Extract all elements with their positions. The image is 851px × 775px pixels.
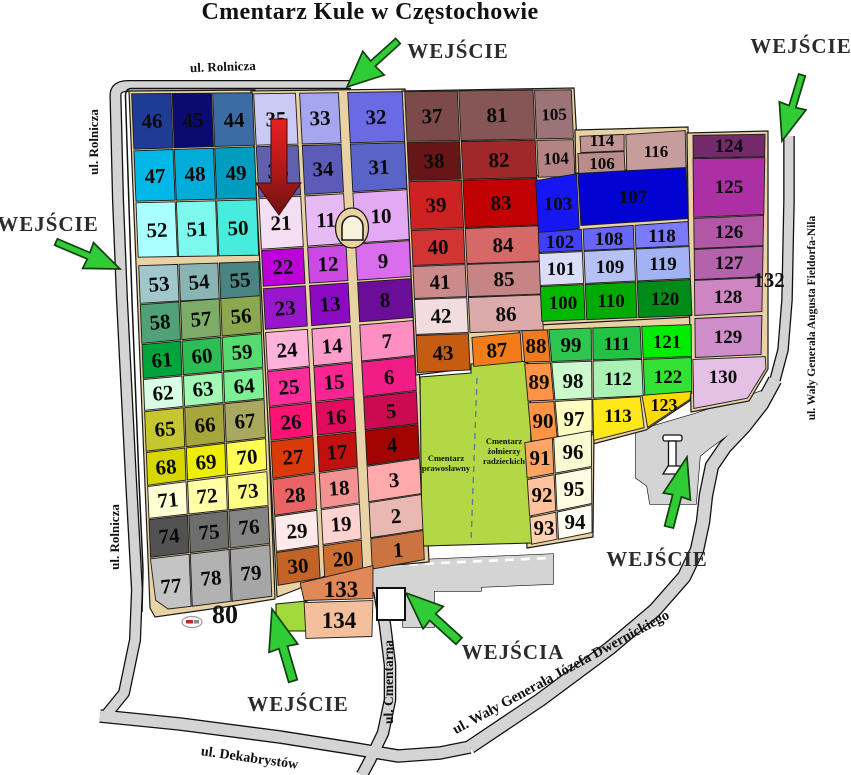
svg-text:40: 40 bbox=[427, 235, 449, 260]
svg-text:86: 86 bbox=[495, 302, 517, 327]
svg-text:WEJŚCIA: WEJŚCIA bbox=[462, 640, 565, 664]
svg-text:56: 56 bbox=[229, 303, 252, 329]
svg-text:94: 94 bbox=[565, 510, 587, 534]
svg-text:31: 31 bbox=[368, 155, 390, 180]
svg-text:64: 64 bbox=[233, 373, 257, 399]
svg-text:19: 19 bbox=[330, 511, 353, 536]
svg-text:108: 108 bbox=[595, 229, 624, 250]
svg-text:126: 126 bbox=[715, 222, 744, 243]
svg-text:1: 1 bbox=[392, 538, 404, 563]
svg-text:ul. Rolnicza: ul. Rolnicza bbox=[86, 109, 101, 175]
svg-text:78: 78 bbox=[199, 565, 222, 591]
svg-text:26: 26 bbox=[280, 409, 303, 434]
svg-text:129: 129 bbox=[714, 327, 743, 348]
svg-text:84: 84 bbox=[492, 233, 514, 258]
svg-text:ul. Rolnicza: ul. Rolnicza bbox=[107, 504, 122, 570]
svg-text:37: 37 bbox=[421, 104, 443, 129]
svg-text:89: 89 bbox=[529, 370, 550, 394]
svg-text:7: 7 bbox=[381, 329, 393, 354]
svg-text:14: 14 bbox=[321, 333, 344, 358]
svg-text:120: 120 bbox=[651, 289, 680, 310]
svg-text:55: 55 bbox=[228, 267, 251, 293]
svg-text:124: 124 bbox=[715, 136, 744, 157]
svg-text:ul. Cmentarna: ul. Cmentarna bbox=[381, 640, 396, 724]
svg-text:20: 20 bbox=[332, 546, 355, 571]
svg-text:116: 116 bbox=[644, 142, 669, 161]
svg-text:21: 21 bbox=[270, 211, 292, 236]
svg-text:29: 29 bbox=[286, 518, 309, 543]
svg-text:76: 76 bbox=[237, 514, 260, 540]
svg-text:9: 9 bbox=[377, 249, 388, 273]
svg-text:125: 125 bbox=[715, 177, 744, 198]
svg-text:69: 69 bbox=[194, 449, 217, 475]
svg-text:85: 85 bbox=[493, 267, 515, 292]
svg-text:44: 44 bbox=[223, 108, 245, 133]
svg-text:ul. Wały Generała Augusta Fiel: ul. Wały Generała Augusta Fieldorfa-Nila bbox=[806, 215, 818, 420]
svg-text:5: 5 bbox=[385, 399, 397, 424]
svg-text:118: 118 bbox=[648, 226, 675, 247]
svg-text:WEJŚCIE: WEJŚCIE bbox=[247, 692, 349, 716]
svg-text:51: 51 bbox=[186, 217, 208, 242]
svg-text:82: 82 bbox=[488, 148, 510, 173]
svg-text:65: 65 bbox=[153, 416, 176, 442]
svg-text:73: 73 bbox=[236, 478, 259, 504]
svg-text:113: 113 bbox=[604, 406, 631, 427]
svg-text:ul. Rolnicza: ul. Rolnicza bbox=[190, 58, 257, 75]
svg-text:119: 119 bbox=[649, 254, 676, 275]
svg-text:97: 97 bbox=[564, 407, 585, 431]
svg-text:111: 111 bbox=[604, 334, 630, 355]
svg-text:79: 79 bbox=[239, 560, 262, 586]
svg-text:62: 62 bbox=[151, 380, 174, 406]
svg-text:58: 58 bbox=[148, 309, 171, 335]
svg-text:130: 130 bbox=[709, 367, 738, 388]
svg-text:75: 75 bbox=[197, 519, 220, 545]
svg-text:71: 71 bbox=[156, 487, 179, 513]
svg-text:132: 132 bbox=[753, 268, 785, 292]
svg-text:12: 12 bbox=[317, 252, 339, 277]
svg-text:28: 28 bbox=[284, 482, 307, 507]
svg-text:42: 42 bbox=[430, 304, 452, 329]
svg-text:74: 74 bbox=[157, 523, 181, 549]
svg-text:11: 11 bbox=[316, 208, 337, 233]
svg-text:Cmentarz: Cmentarz bbox=[428, 453, 465, 463]
svg-text:24: 24 bbox=[276, 337, 299, 362]
svg-text:102: 102 bbox=[546, 232, 575, 253]
svg-text:121: 121 bbox=[653, 332, 682, 353]
svg-text:żołnierzy: żołnierzy bbox=[487, 446, 521, 456]
svg-text:91: 91 bbox=[530, 446, 551, 470]
svg-text:2: 2 bbox=[390, 504, 402, 529]
svg-text:15: 15 bbox=[323, 369, 346, 394]
svg-text:60: 60 bbox=[190, 343, 213, 369]
svg-text:53: 53 bbox=[147, 271, 170, 297]
svg-text:WEJŚCIE: WEJŚCIE bbox=[606, 547, 708, 571]
svg-text:59: 59 bbox=[230, 339, 253, 365]
svg-text:63: 63 bbox=[191, 376, 214, 402]
svg-text:83: 83 bbox=[490, 191, 512, 216]
svg-text:92: 92 bbox=[532, 483, 553, 507]
svg-text:WEJŚCIE: WEJŚCIE bbox=[750, 34, 851, 58]
svg-text:prawosławny: prawosławny bbox=[422, 463, 471, 473]
svg-text:134: 134 bbox=[322, 608, 357, 633]
svg-text:6: 6 bbox=[383, 365, 395, 390]
svg-text:43: 43 bbox=[432, 341, 454, 366]
svg-text:34: 34 bbox=[312, 157, 334, 182]
svg-text:27: 27 bbox=[282, 444, 305, 469]
svg-text:72: 72 bbox=[195, 483, 218, 509]
svg-text:61: 61 bbox=[150, 347, 173, 373]
svg-text:99: 99 bbox=[561, 333, 582, 357]
svg-text:109: 109 bbox=[596, 257, 625, 278]
svg-text:3: 3 bbox=[388, 468, 400, 493]
svg-text:WEJŚCIE: WEJŚCIE bbox=[0, 212, 99, 236]
svg-text:70: 70 bbox=[235, 444, 258, 470]
svg-text:105: 105 bbox=[541, 105, 567, 125]
svg-text:107: 107 bbox=[619, 187, 648, 208]
svg-text:25: 25 bbox=[278, 374, 301, 399]
svg-text:57: 57 bbox=[189, 306, 212, 332]
svg-text:67: 67 bbox=[233, 408, 256, 434]
svg-text:90: 90 bbox=[533, 409, 554, 433]
svg-text:48: 48 bbox=[184, 162, 206, 187]
svg-text:127: 127 bbox=[715, 253, 744, 274]
svg-text:Cmentarz: Cmentarz bbox=[486, 436, 523, 446]
svg-text:49: 49 bbox=[225, 161, 247, 186]
svg-text:104: 104 bbox=[543, 149, 570, 169]
svg-text:114: 114 bbox=[590, 131, 615, 150]
svg-text:47: 47 bbox=[144, 164, 166, 189]
svg-text:112: 112 bbox=[604, 369, 631, 390]
svg-text:133: 133 bbox=[324, 577, 359, 602]
svg-text:93: 93 bbox=[534, 516, 555, 540]
svg-text:38: 38 bbox=[423, 149, 445, 174]
svg-text:52: 52 bbox=[146, 218, 168, 243]
svg-text:16: 16 bbox=[325, 404, 348, 429]
svg-text:77: 77 bbox=[159, 573, 182, 599]
svg-text:101: 101 bbox=[547, 259, 576, 280]
svg-text:23: 23 bbox=[274, 295, 297, 320]
svg-text:17: 17 bbox=[326, 439, 349, 464]
svg-text:66: 66 bbox=[193, 412, 216, 438]
svg-text:41: 41 bbox=[429, 270, 451, 295]
svg-text:95: 95 bbox=[564, 477, 585, 501]
svg-text:45: 45 bbox=[182, 108, 204, 133]
svg-text:13: 13 bbox=[319, 291, 342, 316]
svg-text:88: 88 bbox=[526, 334, 547, 358]
svg-text:30: 30 bbox=[287, 553, 310, 578]
svg-text:22: 22 bbox=[272, 255, 294, 280]
svg-text:Cmentarz Kule w Częstochowie: Cmentarz Kule w Częstochowie bbox=[201, 0, 538, 25]
svg-text:50: 50 bbox=[227, 216, 249, 241]
svg-text:96: 96 bbox=[563, 440, 584, 464]
svg-text:8: 8 bbox=[379, 288, 391, 313]
svg-text:110: 110 bbox=[597, 291, 624, 312]
svg-text:32: 32 bbox=[365, 105, 387, 130]
svg-text:100: 100 bbox=[549, 293, 578, 314]
svg-text:WEJŚCIE: WEJŚCIE bbox=[407, 39, 509, 63]
svg-text:123: 123 bbox=[651, 395, 678, 415]
svg-text:80: 80 bbox=[212, 600, 238, 629]
svg-text:98: 98 bbox=[563, 369, 584, 393]
svg-text:10: 10 bbox=[370, 204, 392, 229]
svg-text:46: 46 bbox=[141, 109, 163, 134]
svg-text:128: 128 bbox=[714, 287, 743, 308]
svg-text:87: 87 bbox=[486, 337, 509, 362]
svg-text:106: 106 bbox=[589, 154, 615, 173]
svg-text:103: 103 bbox=[544, 194, 573, 215]
svg-text:33: 33 bbox=[309, 106, 331, 131]
svg-text:54: 54 bbox=[187, 269, 211, 295]
svg-text:18: 18 bbox=[328, 475, 351, 500]
svg-text:39: 39 bbox=[425, 193, 447, 218]
svg-text:radzieckich: radzieckich bbox=[483, 456, 525, 466]
svg-text:68: 68 bbox=[154, 454, 177, 480]
svg-text:122: 122 bbox=[654, 367, 683, 388]
svg-text:81: 81 bbox=[486, 103, 508, 128]
